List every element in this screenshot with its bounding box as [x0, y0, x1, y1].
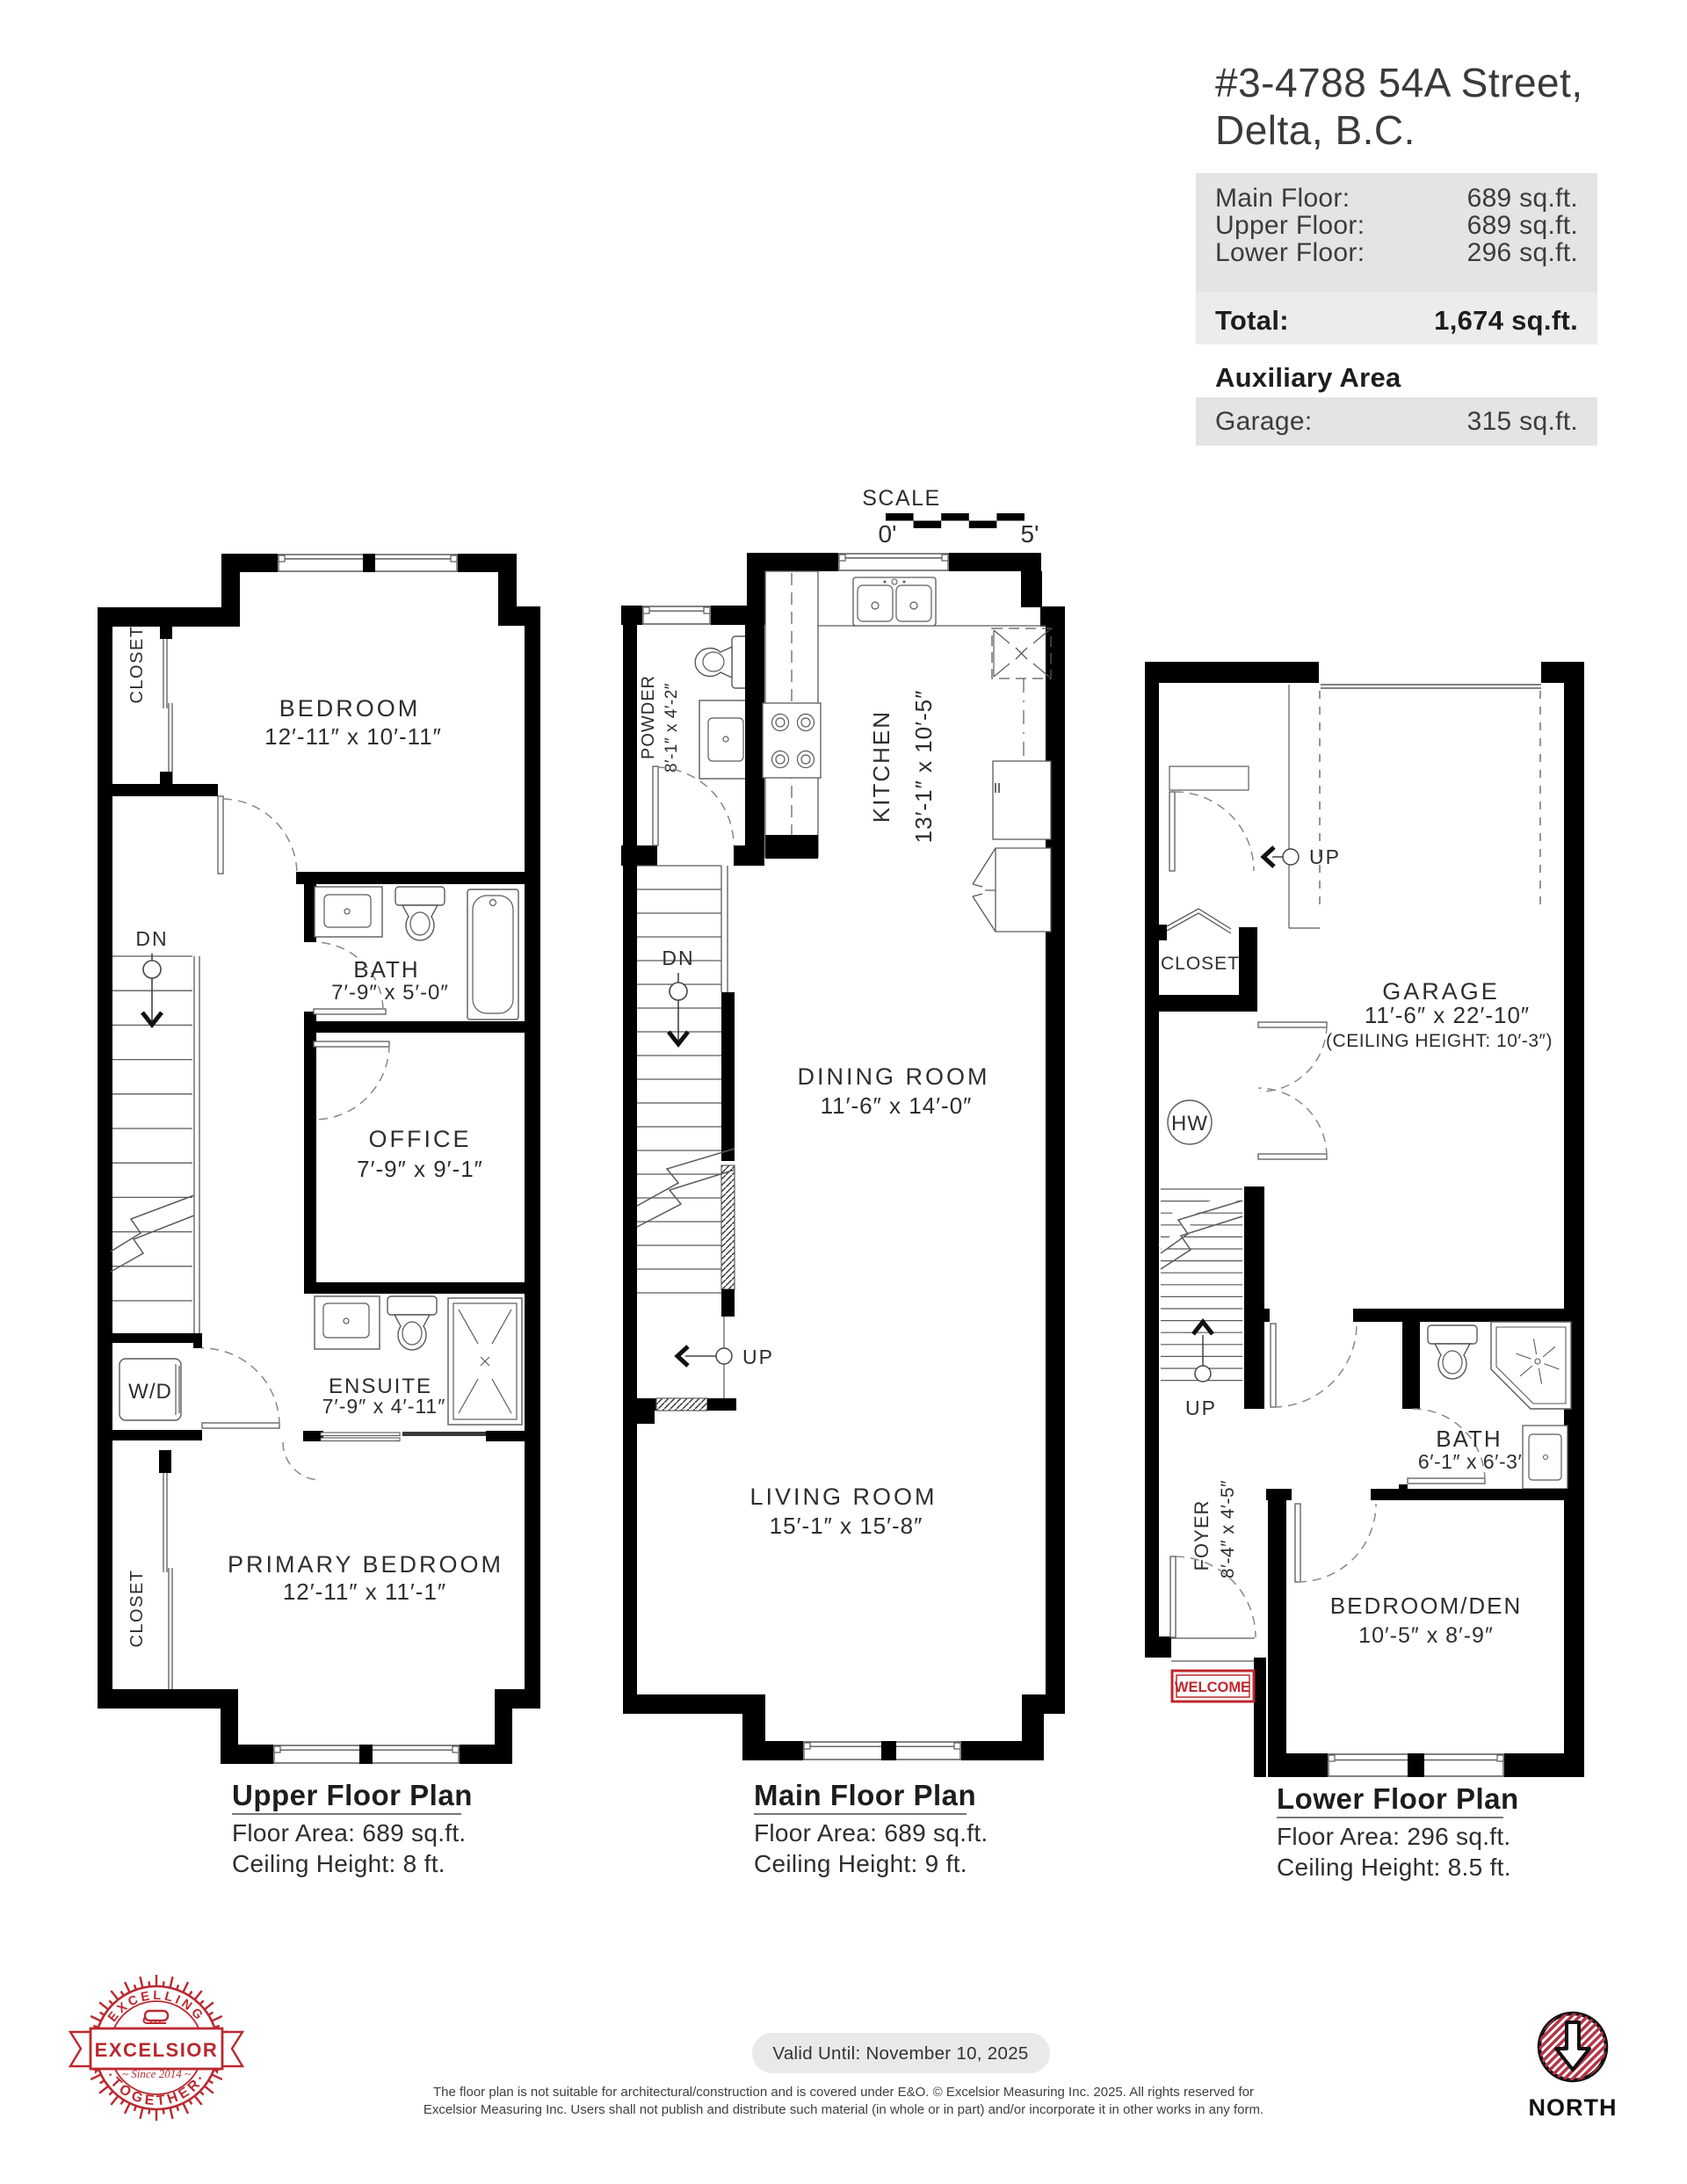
svg-text:7′-9″ x 9′-1″: 7′-9″ x 9′-1″ [357, 1156, 483, 1182]
svg-text:Ceiling Height: 8 ft.: Ceiling Height: 8 ft. [232, 1850, 445, 1877]
svg-text:Upper Floor Plan: Upper Floor Plan [232, 1779, 473, 1811]
svg-text:(CEILING HEIGHT: 10′-3″): (CEILING HEIGHT: 10′-3″) [1326, 1031, 1553, 1051]
svg-text:15′-1″ x 15′-8″: 15′-1″ x 15′-8″ [770, 1513, 923, 1539]
svg-text:POWDER: POWDER [639, 675, 658, 759]
svg-text:UP: UP [1309, 845, 1341, 868]
svg-text:DN: DN [135, 927, 168, 950]
svg-text:6′-1″ x 6′-3″: 6′-1″ x 6′-3″ [1418, 1450, 1525, 1473]
svg-text:FOYER: FOYER [1191, 1500, 1213, 1571]
svg-text:315 sq.ft.: 315 sq.ft. [1467, 407, 1578, 436]
svg-text:Lower Floor:: Lower Floor: [1215, 238, 1365, 267]
svg-text:0': 0' [879, 520, 897, 548]
svg-text:#3-4788 54A Street,: #3-4788 54A Street, [1215, 60, 1583, 105]
svg-text:PRIMARY BEDROOM: PRIMARY BEDROOM [228, 1551, 503, 1578]
svg-text:296 sq.ft.: 296 sq.ft. [1467, 238, 1578, 267]
svg-text:EXCELSIOR: EXCELSIOR [95, 2039, 219, 2061]
svg-text:689 sq.ft.: 689 sq.ft. [1467, 184, 1578, 213]
svg-text:Delta, B.C.: Delta, B.C. [1215, 107, 1415, 153]
svg-text:Floor Area: 689 sq.ft.: Floor Area: 689 sq.ft. [754, 1819, 988, 1847]
svg-text:8′-1″ x 4′-2″: 8′-1″ x 4′-2″ [662, 683, 681, 773]
svg-text:11′-6″ x 14′-0″: 11′-6″ x 14′-0″ [821, 1092, 973, 1119]
svg-text:5': 5' [1021, 520, 1039, 548]
svg-text:NORTH: NORTH [1529, 2094, 1618, 2121]
svg-text:Upper Floor:: Upper Floor: [1215, 211, 1365, 240]
svg-text:HW: HW [1171, 1112, 1208, 1136]
svg-text:Floor Area: 689 sq.ft.: Floor Area: 689 sq.ft. [232, 1819, 467, 1847]
svg-text:689 sq.ft.: 689 sq.ft. [1467, 211, 1578, 240]
svg-text:GARAGE: GARAGE [1382, 978, 1500, 1005]
svg-text:Ceiling Height: 9 ft.: Ceiling Height: 9 ft. [754, 1850, 967, 1877]
svg-text:12′-11″ x 10′-11″: 12′-11″ x 10′-11″ [264, 723, 442, 750]
svg-text:13′-1″ x 10′-5″: 13′-1″ x 10′-5″ [910, 690, 937, 844]
svg-text:BATH: BATH [353, 956, 419, 983]
svg-text:UP: UP [742, 1346, 774, 1368]
svg-text:12′-11″ x 11′-1″: 12′-11″ x 11′-1″ [283, 1578, 446, 1605]
svg-text:~ Since 2014 ~: ~ Since 2014 ~ [122, 2067, 191, 2080]
svg-text:8′-4″ x 4′-5″: 8′-4″ x 4′-5″ [1218, 1480, 1238, 1578]
svg-text:CLOSET: CLOSET [127, 1569, 147, 1647]
svg-text:Lower Floor Plan: Lower Floor Plan [1277, 1782, 1519, 1815]
svg-text:CLOSET: CLOSET [127, 625, 147, 703]
svg-text:The floor plan is not suitable: The floor plan is not suitable for archi… [433, 2085, 1254, 2100]
svg-text:1,674 sq.ft.: 1,674 sq.ft. [1434, 305, 1578, 336]
svg-text:BATH: BATH [1436, 1426, 1502, 1452]
svg-text:SCALE: SCALE [862, 486, 940, 511]
svg-text:BEDROOM: BEDROOM [279, 695, 421, 722]
svg-text:DN: DN [662, 947, 694, 969]
svg-text:Auxiliary Area: Auxiliary Area [1215, 362, 1401, 393]
svg-text:Garage:: Garage: [1215, 407, 1313, 436]
svg-text:10′-5″ x 8′-9″: 10′-5″ x 8′-9″ [1358, 1623, 1494, 1648]
svg-text:Main Floor:: Main Floor: [1215, 184, 1350, 213]
svg-text:Floor Area: 296 sq.ft.: Floor Area: 296 sq.ft. [1277, 1823, 1511, 1850]
svg-text:CLOSET: CLOSET [1161, 954, 1240, 974]
svg-text:OFFICE: OFFICE [369, 1126, 472, 1152]
svg-text:W/D: W/D [128, 1380, 172, 1404]
svg-text:Excelsior Measuring Inc. Users: Excelsior Measuring Inc. Users shall not… [424, 2102, 1263, 2117]
svg-text:7′-9″ x 5′-0″: 7′-9″ x 5′-0″ [331, 981, 449, 1005]
svg-text:WELCOME: WELCOME [1175, 1680, 1250, 1695]
svg-text:DINING ROOM: DINING ROOM [798, 1063, 990, 1090]
svg-text:11′-6″ x 22′-10″: 11′-6″ x 22′-10″ [1365, 1002, 1530, 1028]
svg-text:KITCHEN: KITCHEN [868, 710, 894, 823]
svg-text:Valid Until: November 10, 2025: Valid Until: November 10, 2025 [772, 2043, 1028, 2064]
svg-text:UP: UP [1185, 1397, 1217, 1419]
svg-text:7′-9″ x 4′-11″: 7′-9″ x 4′-11″ [322, 1395, 446, 1418]
svg-text:BEDROOM/DEN: BEDROOM/DEN [1330, 1593, 1522, 1619]
svg-text:Total:: Total: [1215, 305, 1289, 336]
svg-text:Ceiling Height: 8.5 ft.: Ceiling Height: 8.5 ft. [1277, 1854, 1511, 1881]
svg-text:Main Floor Plan: Main Floor Plan [754, 1779, 976, 1811]
svg-text:LIVING ROOM: LIVING ROOM [749, 1484, 937, 1510]
